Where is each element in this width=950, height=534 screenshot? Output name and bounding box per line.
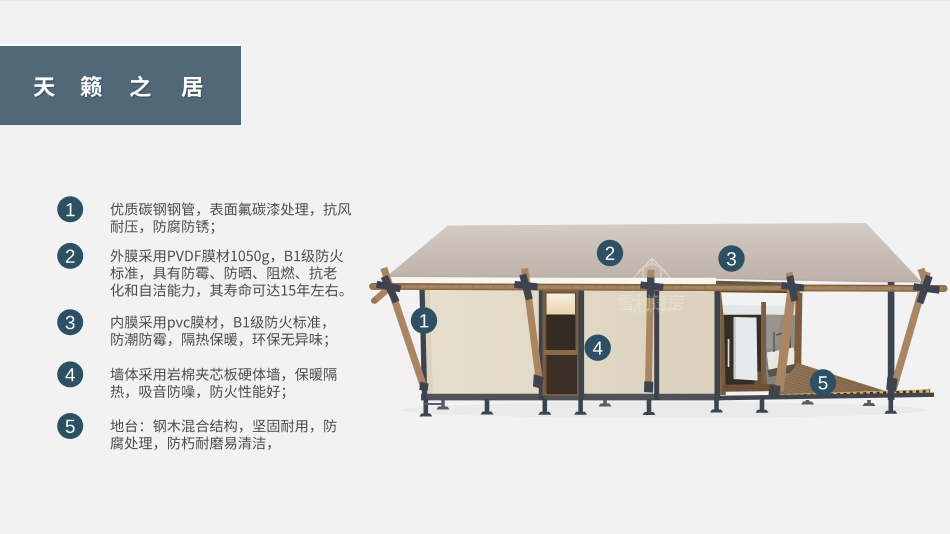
svg-text:XUELIN TENT: XUELIN TENT	[621, 308, 678, 315]
